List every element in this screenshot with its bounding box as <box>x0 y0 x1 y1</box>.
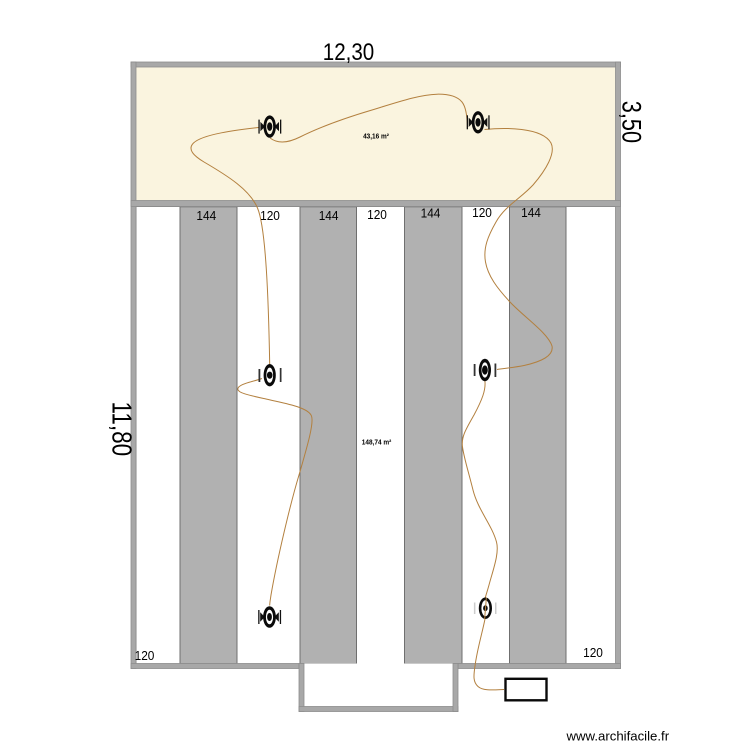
svg-text:144: 144 <box>196 209 216 223</box>
svg-text:120: 120 <box>583 646 603 660</box>
svg-text:3,50: 3,50 <box>616 101 646 143</box>
svg-text:144: 144 <box>521 206 541 220</box>
svg-text:120: 120 <box>260 209 280 223</box>
svg-text:43,16 m²: 43,16 m² <box>363 133 390 140</box>
svg-text:120: 120 <box>472 206 492 220</box>
svg-text:120: 120 <box>135 649 155 663</box>
svg-text:148,74 m²: 148,74 m² <box>362 439 392 446</box>
svg-text:144: 144 <box>319 209 339 223</box>
svg-text:144: 144 <box>421 206 441 220</box>
svg-text:www.archifacile.fr: www.archifacile.fr <box>566 729 670 744</box>
svg-text:120: 120 <box>367 208 387 222</box>
svg-text:11,80: 11,80 <box>106 402 137 457</box>
svg-text:12,30: 12,30 <box>323 38 374 65</box>
